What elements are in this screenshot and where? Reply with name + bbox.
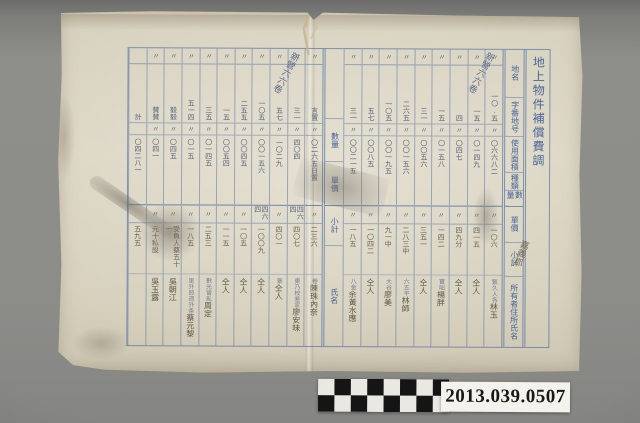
cell-ditto-mid: 〃 [288, 124, 305, 136]
cell-area-value: 一五 [217, 64, 234, 124]
table-column: 〃賛賛〃〇四一〃元十私設吳玉露 [145, 48, 164, 345]
cell-price-value: 〇一四九 [468, 137, 485, 207]
catalog-number-label: 2013.039.0507 [441, 382, 570, 413]
table-column: 〃一五〃〇一五八〃一四二寶咄楊胖 [431, 49, 450, 346]
cell-ditto-mid: 〃 [344, 125, 361, 137]
cell-ditto-lower: 〃 [450, 207, 467, 225]
cell-ditto-mid: 〃 [362, 125, 379, 137]
cell-ditto-lower: 〃 [468, 207, 485, 225]
cell-owner-name: 仝人 [467, 276, 484, 347]
header-type: 種類 [505, 173, 523, 191]
cell-ditto-top: 〃 [451, 50, 468, 66]
cell-ditto-mid: 〃 [217, 124, 234, 136]
color-scale-bar [318, 379, 449, 413]
cell-subtotal-value: 三五一 [414, 224, 431, 276]
cell-price-value: 〇〇一五六 [252, 136, 269, 206]
cell-owner-name: 吳朝江 [164, 275, 181, 346]
cell-owner-name: 八金余黃水應 [343, 276, 360, 347]
cell-price-value: 〇四二八一 [129, 136, 146, 206]
cell-ditto-lower: 四六四 [252, 206, 269, 224]
cell-owner-name: 繁久人各林玉 [485, 276, 502, 347]
cell-area-value: 二六五 [397, 65, 414, 125]
cell-price-value: 〇一四五 [199, 136, 216, 206]
cell-area-value: 言置 [306, 65, 323, 125]
table-column: 〃一〇五〃〇〇一五六四六四一〇〇九仝人 [251, 49, 270, 346]
cell-owner-name: 仝人 [414, 276, 431, 347]
cell-area-value: 計 [129, 64, 146, 124]
cell-ditto-mid: 〃 [182, 124, 199, 136]
table-column: 〃一〇五〃〇〇一九五〃九一中大谷廖美 [378, 49, 397, 346]
table-column: 〃一五〃〇一四九〃四一五仝人 [466, 50, 485, 347]
cell-price-value: 四〇四 [288, 136, 305, 206]
header-subtotal-2: 小計 [325, 206, 343, 246]
cell-ditto-mid [129, 124, 146, 136]
table-column: 〃三一〃〇〇二一五〃一八五八金余黃水應 [342, 49, 361, 346]
cell-ditto-top: 〃 [345, 49, 362, 65]
cell-price-value: 〇〇五四 [217, 136, 234, 206]
cell-price-value: 〇〇二一五 [344, 137, 361, 207]
table-column: 〃一〇.五〃〇六六八二〃一〇六繁久人各林玉 [484, 50, 503, 347]
cell-subtotal-value: 二三六 [305, 224, 322, 276]
cell-price-value: 〇〇一五六 [397, 137, 414, 207]
cell-price-value: 〇四七 [450, 137, 467, 207]
table-column: 〃言置〃〇二六五日置〃二三六卷陳珠內奈 [304, 49, 323, 346]
cell-ditto-top: 〃 [218, 49, 235, 65]
cell-owner-name: 仝人 [216, 275, 233, 346]
cell-ditto-mid: 〃 [450, 125, 467, 137]
table-column: 〃二六五〃〇〇一五六〃二八三中六五平林師 [395, 49, 414, 346]
table-column: 〃三一〃四〇四四六四四〇七東乃校差家廖安味 [286, 49, 305, 346]
stain-left-edge [53, 94, 75, 180]
cell-ditto-lower: 〃 [146, 205, 163, 223]
cell-area-value: 賛賛 [147, 64, 164, 124]
cell-area-value: 一〇五 [380, 65, 397, 125]
cell-owner-name: 仝人 [234, 275, 251, 346]
cell-area-value: 五一四 [182, 64, 199, 124]
stain-bottom-left-corner [72, 326, 130, 360]
header-owner-name: 所有者住所氏名 [504, 276, 522, 347]
cell-owner-name: 里外郎週外条蔡元黎 [181, 275, 198, 346]
cell-subtotal-value: 一四二 [432, 224, 449, 276]
cell-subtotal-value: 二八三中 [397, 224, 414, 276]
cell-ditto-lower: 〃 [397, 206, 414, 224]
cell-owner-name: 卷陳珠內奈 [305, 275, 322, 346]
header-lot-number: 字番地号 [505, 97, 523, 137]
table-column: 〃二五五〃〇〇四五〃一〇五仝人 [233, 49, 252, 346]
cell-ditto-mid: 〃 [380, 125, 397, 137]
cell-subtotal-value: 五九五 [129, 223, 146, 275]
cell-ditto-mid: 〃 [397, 125, 414, 137]
cell-subtotal-value: 四〇七 [287, 224, 304, 276]
cell-area-value: 三五 [200, 64, 217, 124]
cell-area-value: 五七 [362, 65, 379, 125]
cell-owner-name: 六五平林師 [396, 276, 413, 347]
cell-subtotal-value: 二五三 [199, 223, 216, 275]
header-name-2: 氏名 [324, 246, 342, 346]
cell-price-value: 〇〇一九五 [379, 137, 396, 207]
title-column: 地上物件補償費調 [522, 50, 549, 347]
cell-ditto-lower: 〃 [199, 205, 216, 223]
cell-ditto-lower: 〃 [485, 207, 502, 225]
cell-subtotal-value: 一一五 [217, 223, 234, 275]
header-column-middle: 數量 單價 小計 氏名 [321, 49, 343, 346]
cell-ditto-mid: 〃 [468, 125, 485, 137]
cell-ditto-lower: 〃 [217, 205, 234, 223]
cell-ditto-top: 〃 [182, 48, 199, 64]
cell-ditto-top: 〃 [253, 49, 270, 65]
cell-subtotal-value: 一八五 [181, 223, 198, 275]
cell-subtotal-value: 一〇五 [234, 223, 251, 275]
cell-ditto-lower: 〃 [305, 206, 322, 224]
cell-ditto-lower: 〃 [432, 206, 449, 224]
cell-ditto-lower: 〃 [362, 206, 379, 224]
cell-subtotal-value: 一八五 [344, 224, 361, 276]
header-unit-price-2: 單價 [325, 162, 343, 206]
cell-ditto-mid: 〃 [164, 124, 181, 136]
cell-price-value: 一〇二九 [270, 136, 287, 206]
cell-ditto-mid: 〃 [270, 124, 287, 136]
cell-ditto-mid: 〃 [253, 124, 270, 136]
cell-ditto-lower: 〃 [415, 206, 432, 224]
cell-ditto-lower: 〃 [235, 206, 252, 224]
cell-ditto-mid: 〃 [147, 124, 164, 136]
cell-ditto-mid: 〃 [200, 124, 217, 136]
cell-owner-name: 仝人 [252, 275, 269, 346]
table-column: 〃三五〃〇一四五〃二五三數光管亂周定 [198, 48, 217, 345]
header-used-area: 使用面積 [505, 137, 523, 173]
cell-owner-name: 寶咄楊胖 [432, 276, 449, 347]
cell-ditto-lower: 〃 [164, 205, 181, 223]
header-unit-price: 單價 [505, 207, 523, 243]
cell-price-value: 〇四一 [146, 136, 163, 206]
catalog-number: 2013.039.0507 [445, 386, 566, 409]
cell-ditto-top: 〃 [398, 49, 415, 65]
cell-ditto-top [129, 48, 146, 64]
photograph: 地上物件補償費調 地名 字番地号 使用面積 種類 數量 單價 小計 所有者住所氏… [0, 0, 640, 423]
cell-owner-name: 仝人 [449, 276, 466, 347]
cell-owner-name: 數光管亂周定 [199, 275, 216, 346]
table-column: 〃三一〃〇〇五六〃三五一仝人 [413, 49, 432, 346]
header-quantity-2: 數量 [325, 119, 343, 163]
cell-owner-name: 寨仝人 [269, 275, 286, 346]
cell-ditto-lower: 〃 [379, 206, 396, 224]
ledger-table: 地上物件補償費調 地名 字番地号 使用面積 種類 數量 單價 小計 所有者住所氏… [126, 47, 550, 348]
cell-ditto-top: 〃 [415, 49, 432, 65]
cell-ditto-top: 〃 [200, 48, 217, 64]
header-placename: 地名 [505, 50, 523, 98]
cell-area-value: 一〇.五 [486, 66, 503, 126]
cell-owner-name: 吳玉露 [146, 275, 163, 346]
table-column: 計〇四二八一五九五 [127, 48, 146, 345]
header-column-right: 地名 字番地号 使用面積 種類 數量 單價 小計 所有者住所氏名 [501, 50, 523, 347]
cell-ditto-top: 〃 [235, 49, 252, 65]
cell-subtotal-value: 四一五 [467, 224, 484, 276]
cell-ditto-mid: 〃 [486, 125, 503, 137]
cell-ditto-top: 〃 [165, 48, 182, 64]
cell-price-value: 〇二六五日置 [305, 136, 322, 206]
cell-subtotal-value: 九一中 [379, 224, 396, 276]
cell-area-value: 三一 [415, 65, 432, 125]
cell-owner-name [128, 275, 145, 346]
cell-subtotal-value: 四〇一 [270, 224, 287, 276]
cell-ditto-lower: 四六四 [288, 206, 305, 224]
table-column: 〃一五〃〇〇五四〃一一五仝人 [215, 49, 234, 346]
cell-subtotal-value: 一〇六 [485, 225, 502, 277]
cell-area-value: 一五 [433, 65, 450, 125]
cell-price-value: 〇四五 [164, 136, 181, 206]
cell-subtotal-value: 一〇〇九 [252, 224, 269, 276]
cell-ditto-mid: 〃 [415, 125, 432, 137]
cell-ditto-top: 〃 [380, 49, 397, 65]
cell-price-value: 〇〇四五 [235, 136, 252, 206]
cell-price-value: 〇一五 [182, 136, 199, 206]
header-blank [325, 49, 343, 119]
cell-subtotal-value: 四九分 [450, 224, 467, 276]
cell-ditto-lower: 〃 [344, 206, 361, 224]
cell-subtotal-value: 元十私設 [146, 223, 163, 275]
cell-subtotal-value: 受負人蔡五十一 [164, 223, 181, 275]
cell-area-value: 三一 [288, 65, 305, 125]
cell-ditto-mid: 〃 [433, 125, 450, 137]
table-column: 〃毅毅〃〇四五〃受負人蔡五十一吳朝江 [163, 48, 182, 345]
cell-owner-name: 仝人 [361, 276, 378, 347]
cell-owner-name: 大谷廖美 [379, 276, 396, 347]
table-column: 〃五七〃〇〇八五〃一〇四二仝人 [360, 49, 379, 346]
cell-price-value: 〇〇五六 [415, 137, 432, 207]
cell-ditto-top: 〃 [362, 49, 379, 65]
document-title: 地上物件補償費調 [525, 50, 549, 347]
cell-ditto-top: 〃 [147, 48, 164, 64]
table-column: 〃四〃〇四七〃四九分仝人 [448, 50, 467, 347]
cell-price-value: 〇一五八 [432, 137, 449, 207]
cell-ditto-lower: 〃 [182, 205, 199, 223]
document-paper: 地上物件補償費調 地名 字番地号 使用面積 種類 數量 單價 小計 所有者住所氏… [56, 8, 584, 376]
cell-area-value: 二五五 [235, 65, 252, 125]
cell-area-value: 一〇五 [253, 65, 270, 125]
cell-area-value: 毅毅 [164, 64, 181, 124]
cell-ditto-lower: 〃 [270, 206, 287, 224]
cell-price-value: 〇〇八五 [362, 137, 379, 207]
cell-subtotal-value: 一〇四二 [361, 224, 378, 276]
table-column: 〃五一四〃〇一五〃一八五里外郎週外条蔡元黎 [180, 48, 199, 345]
cell-area-value: 四 [450, 65, 467, 125]
cell-owner-name: 東乃校差家廖安味 [287, 275, 304, 346]
cell-ditto-mid: 〃 [306, 124, 323, 136]
fold-tear-mark [294, 9, 328, 57]
cell-ditto-mid: 〃 [235, 124, 252, 136]
cell-ditto-lower [129, 205, 146, 223]
cell-area-value: 三一 [344, 65, 361, 125]
header-quantity: 數量 [505, 191, 523, 207]
cell-price-value: 〇六六八二 [485, 137, 502, 207]
cell-ditto-top: 〃 [433, 49, 450, 65]
